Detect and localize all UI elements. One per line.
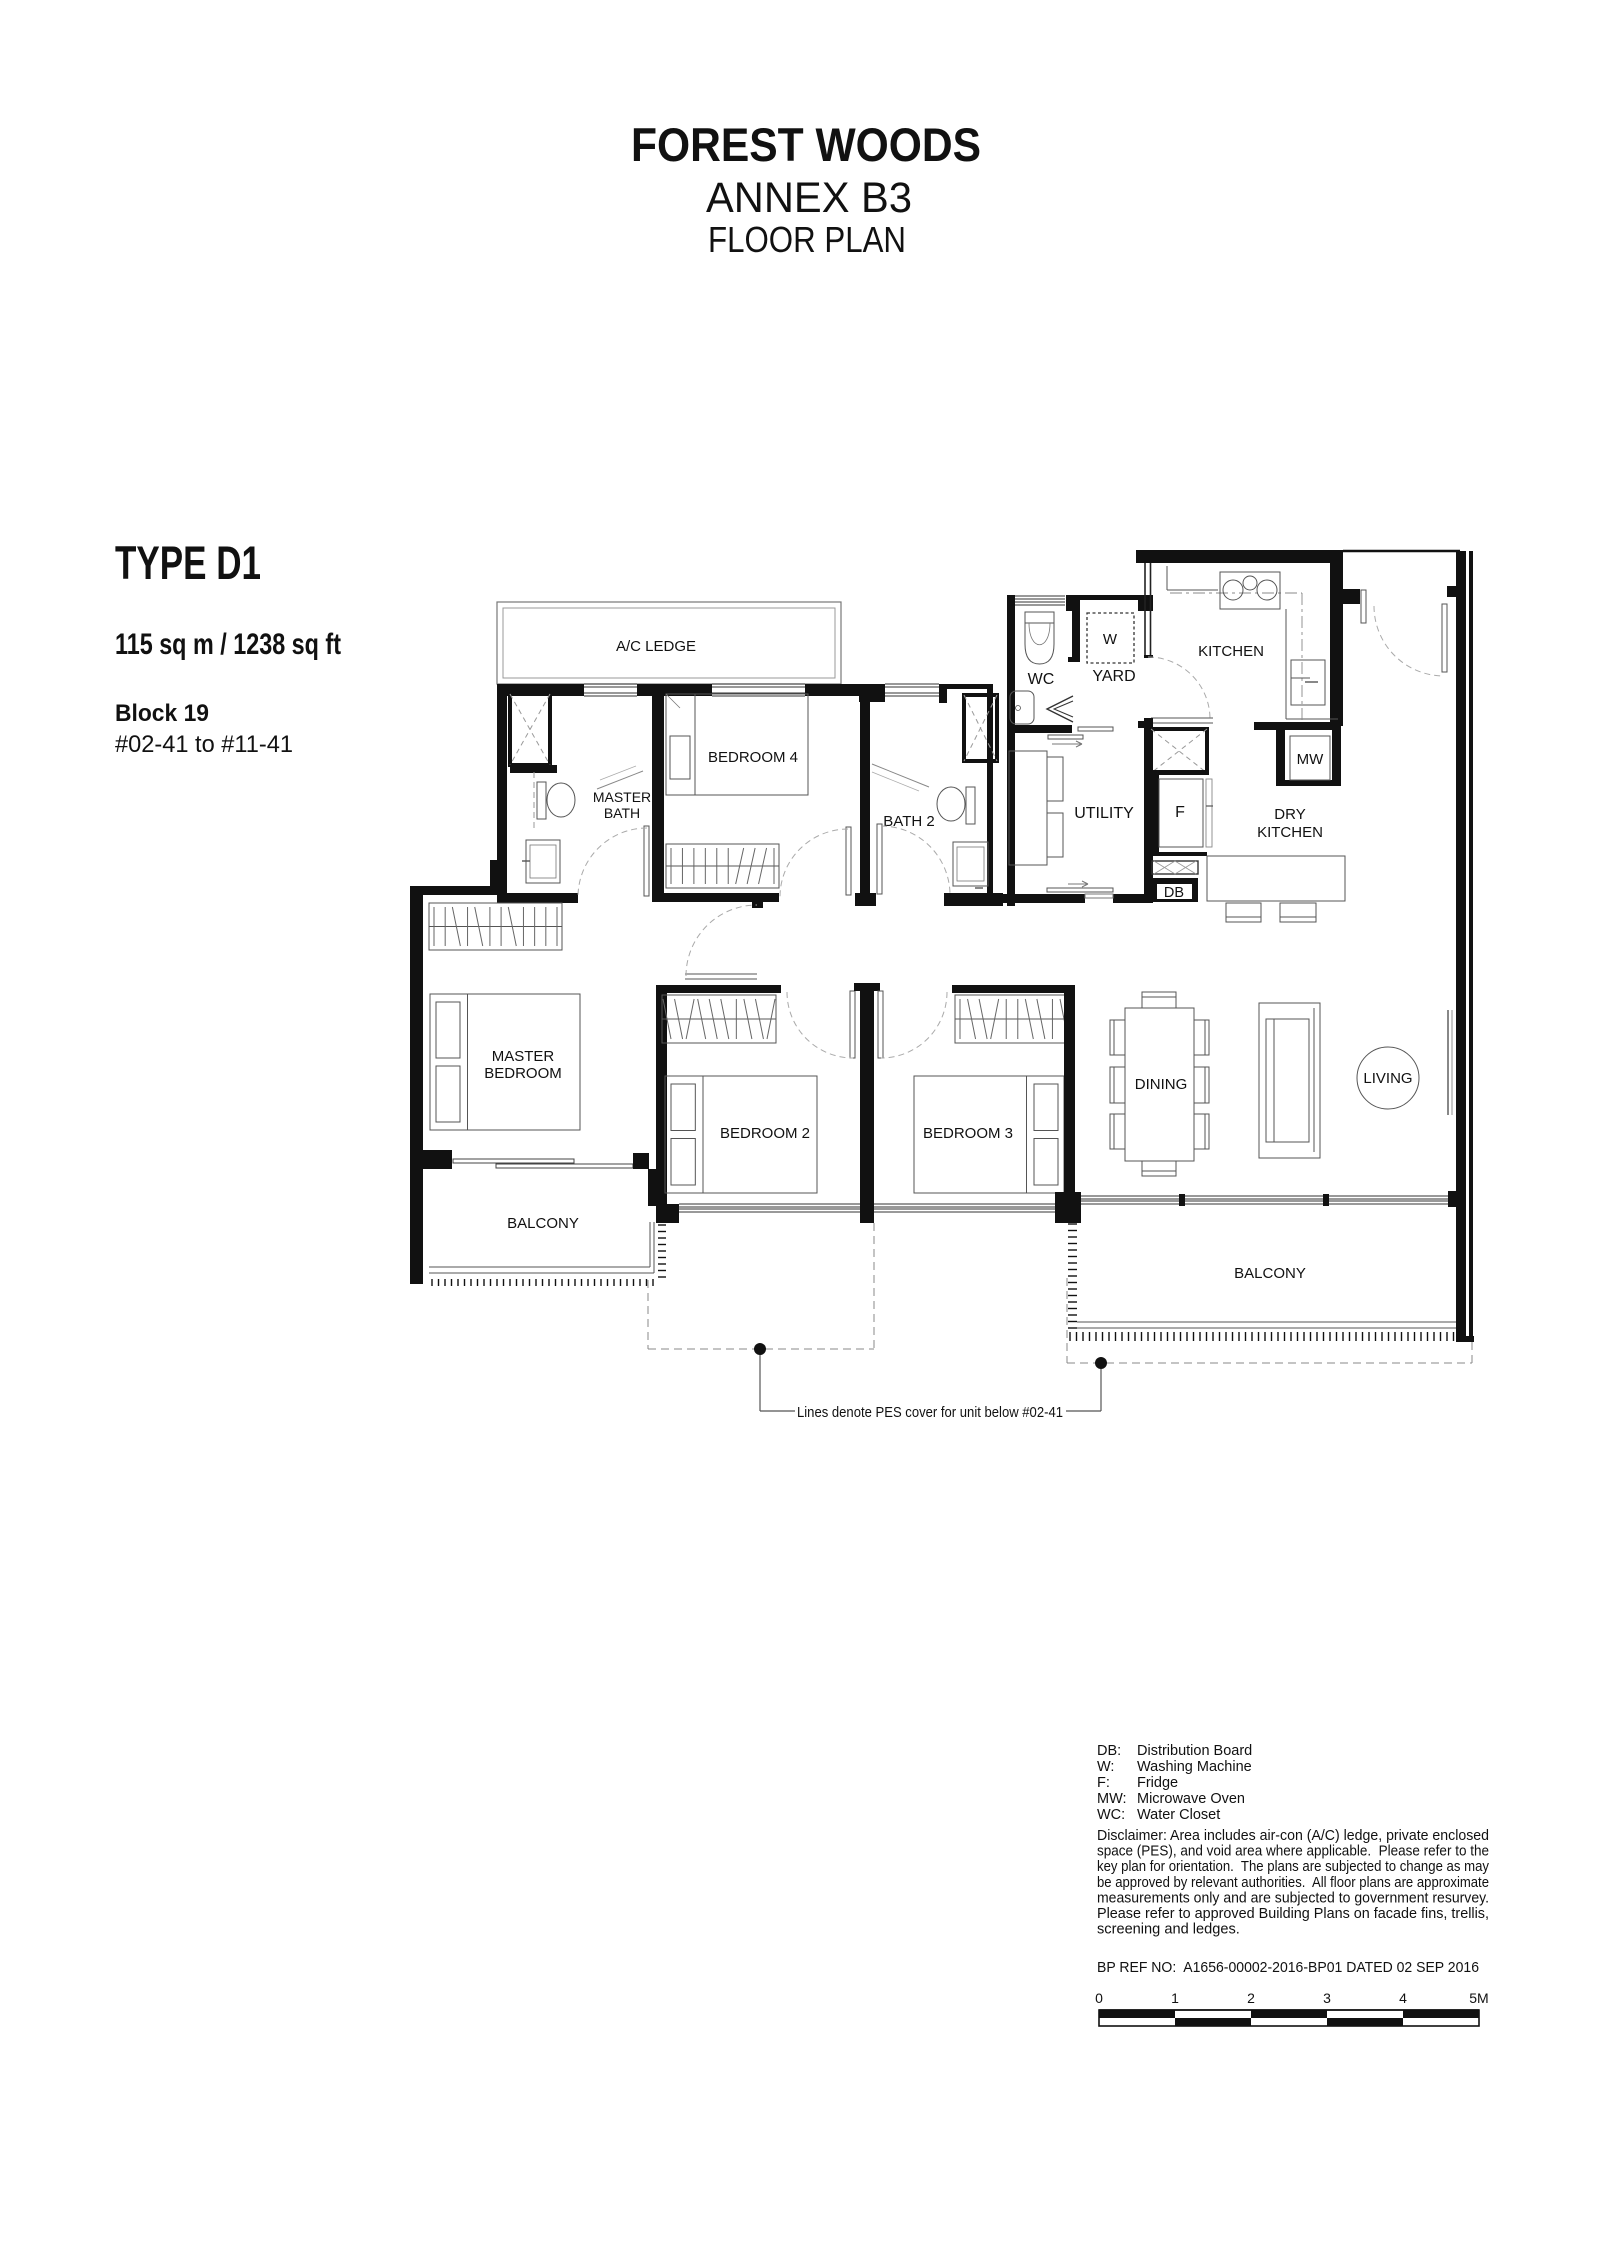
svg-text:key plan for orientation. The: key plan for orientation. The plans are … [1097,1859,1490,1875]
svg-text:BEDROOM: BEDROOM [484,1065,562,1082]
svg-text:measurements only and are subj: measurements only and are subjected to g… [1097,1890,1489,1906]
svg-text:5M: 5M [1469,1990,1488,2006]
svg-text:0: 0 [1095,1990,1103,2006]
svg-text:2: 2 [1247,1990,1255,2006]
svg-text:Block 19: Block 19 [115,700,209,727]
svg-text:MASTER: MASTER [593,789,651,805]
svg-text:WC:: WC: [1097,1807,1125,1823]
svg-text:KITCHEN: KITCHEN [1257,824,1323,841]
svg-text:DRY: DRY [1274,806,1305,823]
svg-text:A/C LEDGE: A/C LEDGE [616,638,696,655]
svg-text:Water Closet: Water Closet [1137,1807,1220,1823]
svg-text:DB:: DB: [1097,1743,1121,1759]
svg-text:BEDROOM 3: BEDROOM 3 [923,1125,1013,1142]
svg-text:F: F [1175,804,1185,821]
svg-text:W:: W: [1097,1759,1114,1775]
svg-text:Microwave Oven: Microwave Oven [1137,1791,1245,1807]
svg-text:BATH 2: BATH 2 [883,813,934,830]
svg-text:ANNEX B3: ANNEX B3 [706,174,912,222]
svg-text:BEDROOM 4: BEDROOM 4 [708,749,798,766]
svg-text:FLOOR PLAN: FLOOR PLAN [708,219,906,260]
svg-text:MW:: MW: [1097,1791,1127,1807]
svg-text:W: W [1103,631,1118,648]
svg-text:1: 1 [1171,1990,1179,2006]
svg-text:Please refer to approved Build: Please refer to approved Building Plans … [1097,1906,1489,1922]
svg-text:FOREST WOODS: FOREST WOODS [631,118,981,171]
svg-text:4: 4 [1399,1990,1407,2006]
svg-text:YARD: YARD [1092,668,1135,685]
svg-text:MASTER: MASTER [492,1048,555,1065]
svg-text:MW: MW [1297,751,1324,768]
svg-text:KITCHEN: KITCHEN [1198,643,1264,660]
svg-text:F:: F: [1097,1775,1110,1791]
svg-text:Washing Machine: Washing Machine [1137,1759,1252,1775]
svg-text:space (PES), and void area whe: space (PES), and void area where applica… [1097,1844,1489,1860]
svg-text:BALCONY: BALCONY [507,1215,579,1232]
svg-text:DINING: DINING [1135,1076,1188,1093]
svg-text:BATH: BATH [604,805,640,821]
svg-text:WC: WC [1028,671,1055,688]
svg-text:Lines denote PES cover for uni: Lines denote PES cover for unit below #0… [797,1404,1063,1421]
svg-text:screening and ledges.: screening and ledges. [1097,1922,1240,1938]
svg-text:3: 3 [1323,1990,1331,2006]
svg-text:Disclaimer: Area includes air-: Disclaimer: Area includes air-con (A/C) … [1097,1828,1489,1844]
svg-text:be approved by relevant author: be approved by relevant authorities. All… [1097,1875,1489,1891]
svg-text:DB: DB [1164,885,1184,901]
svg-text:LIVING: LIVING [1363,1070,1412,1087]
svg-text:115 sq m / 1238 sq ft: 115 sq m / 1238 sq ft [115,628,341,661]
svg-text:Fridge: Fridge [1137,1775,1178,1791]
svg-text:#02-41 to #11-41: #02-41 to #11-41 [115,731,293,758]
svg-text:UTILITY: UTILITY [1074,805,1134,822]
svg-text:BP REF NO: A1656-00002-2016-B: BP REF NO: A1656-00002-2016-BP01 DATED 0… [1097,1959,1479,1976]
svg-text:BEDROOM 2: BEDROOM 2 [720,1125,810,1142]
svg-text:TYPE D1: TYPE D1 [115,536,261,589]
svg-text:Distribution Board: Distribution Board [1137,1743,1252,1759]
svg-text:BALCONY: BALCONY [1234,1265,1306,1282]
